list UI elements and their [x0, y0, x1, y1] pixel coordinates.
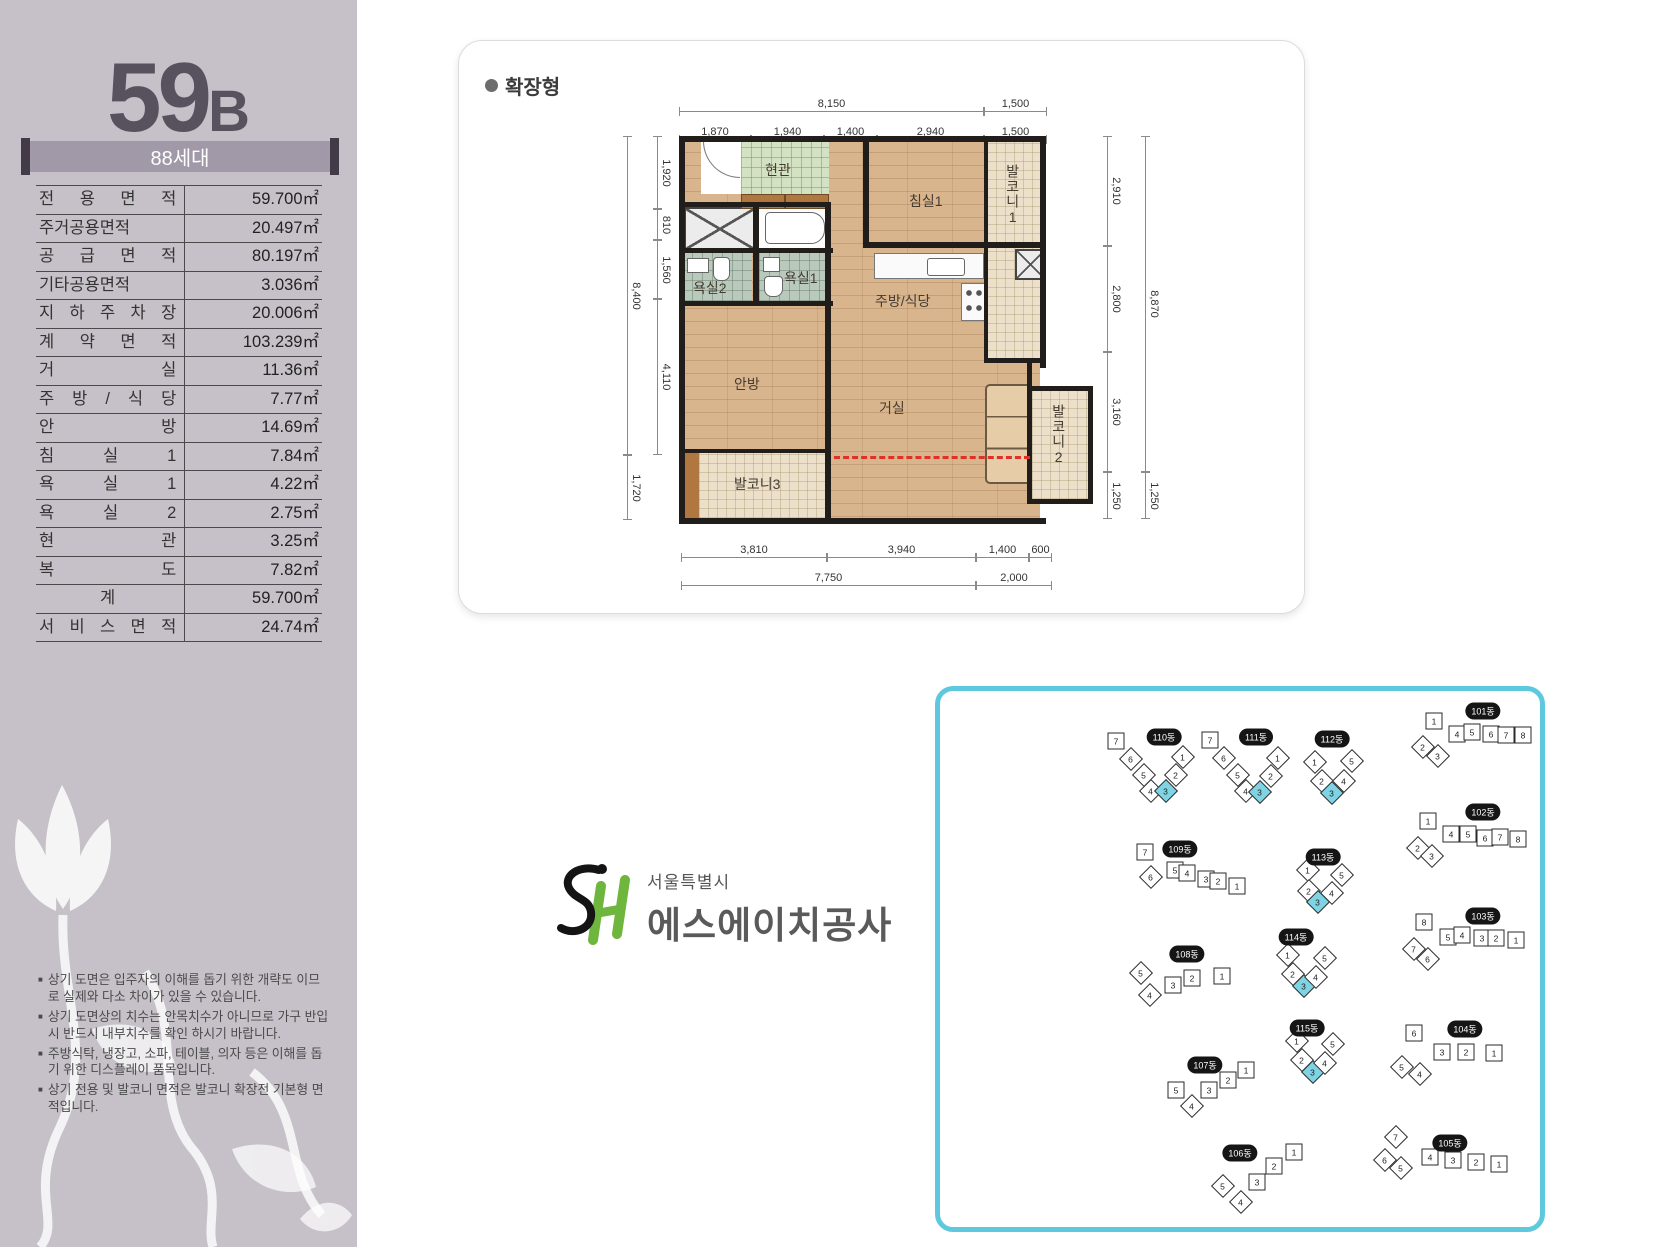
- dimension-label: 1,720: [627, 455, 644, 520]
- dimension-label: 7,750: [681, 569, 976, 586]
- footnote-item: 상기 전용 및 발코니 면적은 발코니 확장전 기본형 면적입니다.: [38, 1082, 330, 1116]
- building-unit: 2: [1184, 970, 1201, 987]
- row-value: 80.197㎡: [185, 243, 322, 271]
- site-plan: 110동7654321111동7654321112동12345101동12345…: [935, 686, 1545, 1232]
- room-label-bedroom1: 침실1: [909, 191, 943, 211]
- building-label: 108동: [1169, 946, 1204, 963]
- building-unit: 4: [1229, 1190, 1253, 1214]
- households-badge: 88세대: [30, 141, 330, 172]
- building-unit: 4: [1454, 927, 1471, 944]
- building-label: 105동: [1432, 1135, 1467, 1152]
- dimension-label: 810: [657, 209, 674, 240]
- row-label: 주 방 / 식 당: [36, 386, 185, 414]
- footnote-item: 상기 도면상의 치수는 안목치수가 아니므로 가구 반입시 반드시 내부치수를 …: [38, 1009, 330, 1043]
- row-value: 24.74㎡: [185, 614, 322, 642]
- building-unit: 1: [1508, 932, 1525, 949]
- row-value: 2.75㎡: [185, 500, 322, 528]
- expansion-line: [834, 456, 1030, 459]
- sidebar: 59B 88세대 전 용 면 적59.700㎡주거공용면적20.497㎡공 급 …: [0, 0, 357, 1247]
- sh-logo-icon: [555, 862, 633, 954]
- dimension-label: 1,920: [657, 136, 674, 209]
- footnote-item: 상기 도면은 입주자의 이해를 돕기 위한 개략도 이므로 실제와 다소 차이가…: [38, 972, 330, 1006]
- building-unit: 1: [1286, 1144, 1303, 1161]
- building-unit: 1: [1491, 1156, 1508, 1173]
- building-label: 114동: [1279, 929, 1314, 946]
- building-unit: 2: [1220, 1072, 1237, 1089]
- row-label: 지 하 주 차 장: [36, 300, 185, 328]
- building-label: 112동: [1315, 731, 1350, 748]
- table-row: 서 비 스 면 적24.74㎡: [36, 614, 322, 643]
- building-unit: 4: [1443, 826, 1460, 843]
- building-unit: 5: [1460, 826, 1477, 843]
- table-row: 기타공용면적3.036㎡: [36, 272, 322, 301]
- building-unit: 1: [1486, 1045, 1503, 1062]
- kitchen-sink: [927, 258, 965, 276]
- row-value: 3.036㎡: [185, 272, 322, 300]
- stove: [961, 283, 985, 321]
- row-value: 20.006㎡: [185, 300, 322, 328]
- elevator-shaft: [684, 207, 756, 251]
- building-unit: 7: [1202, 732, 1219, 749]
- building-unit: 8: [1416, 914, 1433, 931]
- row-value: 7.82㎡: [185, 557, 322, 585]
- building-unit: 3: [1165, 977, 1182, 994]
- building-unit: 2: [1458, 1044, 1475, 1061]
- building-unit: 7: [1498, 727, 1515, 744]
- row-value: 11.36㎡: [185, 357, 322, 385]
- mode-label: 확장형: [485, 71, 560, 100]
- row-label: 계 약 면 적: [36, 329, 185, 357]
- room-label-living: 거실: [879, 398, 905, 418]
- unit-type-title: 59B: [0, 48, 357, 146]
- building-unit: 3: [1249, 1174, 1266, 1191]
- room-label-bath1: 욕실1: [784, 268, 818, 288]
- building-unit: 5: [1211, 1174, 1235, 1198]
- footnotes: 상기 도면은 입주자의 이해를 돕기 위한 개략도 이므로 실제와 다소 차이가…: [38, 972, 330, 1119]
- unit-type-number: 59: [107, 42, 208, 152]
- room-label-master: 안방: [734, 374, 760, 394]
- building-label: 106동: [1222, 1145, 1257, 1162]
- table-row: 전 용 면 적59.700㎡: [36, 186, 322, 215]
- row-value: 59.700㎡: [185, 585, 322, 613]
- table-row: 복 도7.82㎡: [36, 557, 322, 586]
- dimension-label: 2,000: [976, 569, 1052, 586]
- bath2-sink: [687, 258, 709, 273]
- table-row: 현 관3.25㎡: [36, 528, 322, 557]
- building-label: 113동: [1306, 849, 1341, 866]
- room-label-balcony2: 발코니2: [1051, 404, 1066, 466]
- row-value: 7.77㎡: [185, 386, 322, 414]
- building-unit: 3: [1201, 1082, 1218, 1099]
- dimension-label: 8,870: [1145, 136, 1162, 472]
- building-label: 104동: [1447, 1021, 1482, 1038]
- row-label: 공 급 면 적: [36, 243, 185, 271]
- building-label: 115동: [1290, 1020, 1325, 1037]
- building-label: 107동: [1187, 1057, 1222, 1074]
- table-row: 주거공용면적20.497㎡: [36, 215, 322, 244]
- dimension-label: 600: [1029, 541, 1052, 558]
- dimension-label: 1,400: [976, 541, 1029, 558]
- row-label: 서 비 스 면 적: [36, 614, 185, 642]
- table-row: 욕 실 22.75㎡: [36, 500, 322, 529]
- footnote-item: 주방식탁, 냉장고, 소파, 테이블, 의자 등은 이해를 돕기 위한 디스플레…: [38, 1046, 330, 1080]
- row-label: 욕 실 2: [36, 500, 185, 528]
- building-label: 103동: [1465, 908, 1500, 925]
- building-unit: 5: [1129, 961, 1153, 985]
- area-table: 전 용 면 적59.700㎡주거공용면적20.497㎡공 급 면 적80.197…: [36, 185, 322, 642]
- room-label-bath2: 욕실2: [693, 278, 727, 298]
- room-label-balcony3: 발코니3: [734, 474, 780, 494]
- floorplan-card: 확장형 8,1501,5001,8701,9401,4002,9401,5003…: [458, 40, 1305, 614]
- building-unit: 4: [1138, 983, 1162, 1007]
- table-row: 지 하 주 차 장20.006㎡: [36, 300, 322, 329]
- table-row: 계59.700㎡: [36, 585, 322, 614]
- building-unit: 1: [1276, 943, 1300, 967]
- building-unit: 6: [1139, 865, 1163, 889]
- dimension-label: 8,400: [627, 136, 644, 455]
- room-label-entrance: 현관: [765, 160, 791, 180]
- building-unit: 1: [1214, 968, 1231, 985]
- building-unit: 1: [1229, 878, 1246, 895]
- building-unit: 1: [1426, 713, 1443, 730]
- dimension-label: 1,250: [1145, 472, 1162, 519]
- row-value: 20.497㎡: [185, 215, 322, 243]
- row-label: 계: [36, 585, 185, 613]
- dimension-label: 3,810: [681, 541, 827, 558]
- room-label-balcony1: 발코니1: [1005, 164, 1020, 226]
- building-unit: 7: [1108, 733, 1125, 750]
- sh-logo: 서울특별시 에스에이치공사: [555, 862, 892, 954]
- row-label: 거 실: [36, 357, 185, 385]
- row-value: 3.25㎡: [185, 528, 322, 556]
- sh-logo-text: 서울특별시 에스에이치공사: [647, 862, 892, 949]
- row-label: 욕 실 1: [36, 471, 185, 499]
- row-label: 기타공용면적: [36, 272, 185, 300]
- building-unit: 3: [1434, 1044, 1451, 1061]
- unit-type-suffix: B: [208, 79, 250, 144]
- row-label: 침 실 1: [36, 443, 185, 471]
- mode-label-text: 확장형: [505, 71, 560, 100]
- sofa: [985, 384, 1033, 484]
- building-unit: 6: [1212, 746, 1236, 770]
- dimension-label: 2,910: [1107, 136, 1124, 246]
- building-unit: 2: [1488, 930, 1505, 947]
- row-label: 안 방: [36, 414, 185, 442]
- building-unit: 7: [1384, 1125, 1408, 1149]
- dimension-label: 3,940: [827, 541, 976, 558]
- building-unit: 8: [1515, 727, 1532, 744]
- building-unit: 3: [1445, 1152, 1462, 1169]
- building-unit: 6: [1406, 1025, 1423, 1042]
- bath1-sink: [763, 257, 780, 272]
- building-unit: 2: [1266, 1158, 1283, 1175]
- building-unit: 8: [1510, 831, 1527, 848]
- row-value: 59.700㎡: [185, 186, 322, 214]
- dimension-label: 4,110: [657, 299, 674, 455]
- table-row: 공 급 면 적80.197㎡: [36, 243, 322, 272]
- table-row: 계 약 면 적103.239㎡: [36, 329, 322, 358]
- row-value: 7.84㎡: [185, 443, 322, 471]
- table-row: 욕 실 14.22㎡: [36, 471, 322, 500]
- bullet-icon: [485, 79, 498, 92]
- row-value: 4.22㎡: [185, 471, 322, 499]
- brochure-page: 59B 88세대 전 용 면 적59.700㎡주거공용면적20.497㎡공 급 …: [0, 0, 1667, 1247]
- dimension-label: 3,160: [1107, 352, 1124, 472]
- building-unit: 4: [1179, 865, 1196, 882]
- bathtub: [765, 212, 825, 244]
- building-unit: 1: [1420, 813, 1437, 830]
- row-value: 14.69㎡: [185, 414, 322, 442]
- dimension-label: 1,560: [657, 240, 674, 299]
- building-unit: 1: [1238, 1062, 1255, 1079]
- building-label: 101동: [1465, 703, 1500, 720]
- dimension-label: 1,500: [984, 95, 1047, 112]
- logo-company: 에스에이치공사: [647, 895, 892, 949]
- building-label: 111동: [1239, 729, 1273, 746]
- building-unit: 5: [1464, 724, 1481, 741]
- row-label: 현 관: [36, 528, 185, 556]
- room-label-kitchen: 주방/식당: [875, 291, 930, 311]
- building-unit: 2: [1210, 873, 1227, 890]
- table-row: 주 방 / 식 당7.77㎡: [36, 386, 322, 415]
- row-value: 103.239㎡: [185, 329, 322, 357]
- building-unit: 5: [1168, 1082, 1185, 1099]
- dimension-label: 1,250: [1107, 472, 1124, 519]
- building-unit: 7: [1492, 829, 1509, 846]
- row-label: 전 용 면 적: [36, 186, 185, 214]
- building-label: 102동: [1465, 804, 1500, 821]
- building-label: 110동: [1147, 729, 1182, 746]
- logo-city: 서울특별시: [647, 868, 892, 893]
- building-unit: 2: [1468, 1154, 1485, 1171]
- row-label: 복 도: [36, 557, 185, 585]
- row-label: 주거공용면적: [36, 215, 185, 243]
- table-row: 침 실 17.84㎡: [36, 443, 322, 472]
- floorplan-drawing: 현관 침실1 발코니1 욕실1 욕실2 주방/식당 안방 거실 발코니2 발코니…: [679, 136, 1094, 526]
- table-row: 안 방14.69㎡: [36, 414, 322, 443]
- bath1-toilet: [764, 276, 783, 297]
- building-unit: 7: [1137, 844, 1154, 861]
- building-unit: 4: [1422, 1149, 1439, 1166]
- table-row: 거 실11.36㎡: [36, 357, 322, 386]
- dimension-label: 8,150: [679, 95, 984, 112]
- dimension-label: 2,800: [1107, 246, 1124, 352]
- building-label: 109동: [1162, 841, 1197, 858]
